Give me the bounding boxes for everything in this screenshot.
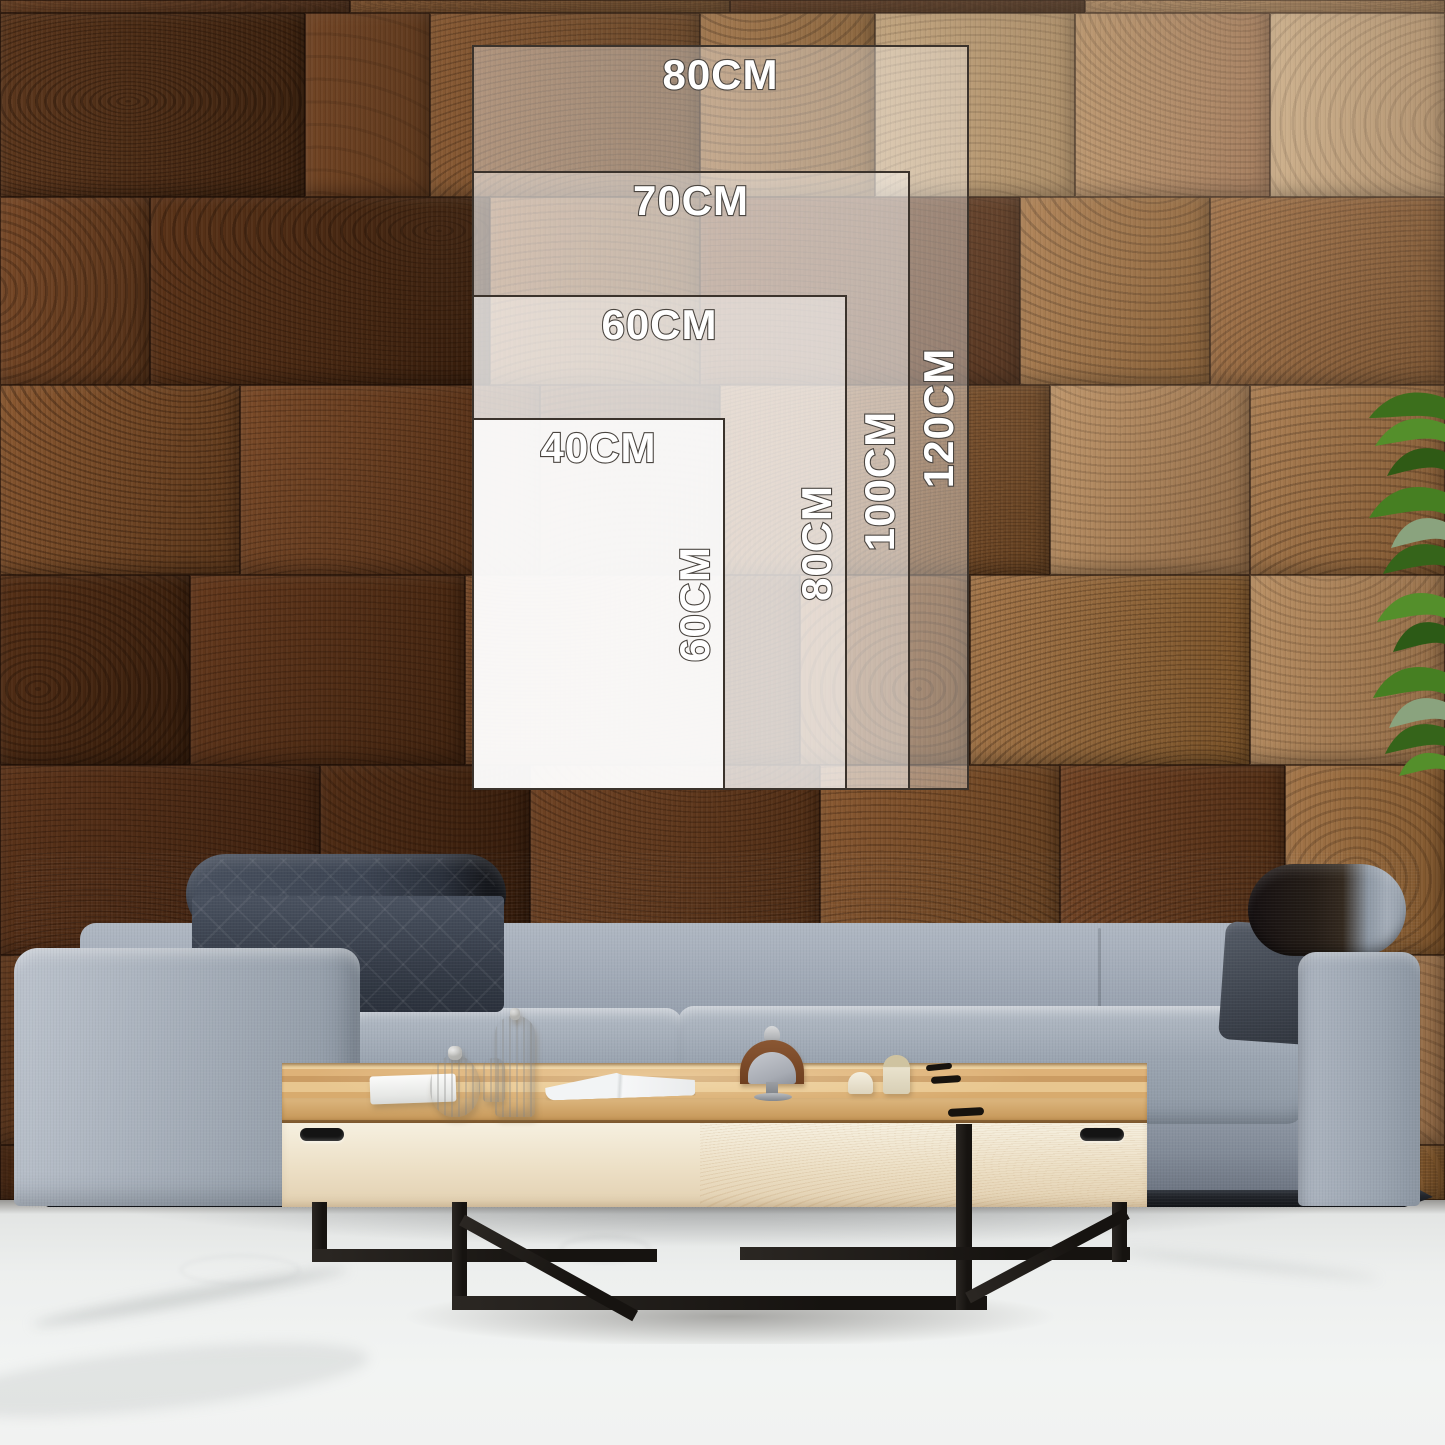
- wall-tile: [0, 0, 350, 13]
- height-label-60cm: 60CM: [674, 546, 716, 662]
- width-label-40cm: 40CM: [474, 427, 723, 469]
- wall-tile: [1270, 13, 1445, 197]
- wall-tile: [0, 575, 190, 765]
- width-label-80cm: 80CM: [474, 54, 967, 96]
- height-label-80cm: 80CM: [796, 484, 838, 600]
- plant-leaves: [1369, 392, 1445, 776]
- table-lower-box: [282, 1123, 1147, 1207]
- table-leg: [956, 1124, 972, 1310]
- height-label-100cm: 100CM: [859, 410, 901, 550]
- wall-tile: [970, 575, 1250, 765]
- wall-tile: [190, 575, 465, 765]
- gourd-vase: [430, 1055, 480, 1117]
- table-leg-runner: [312, 1249, 657, 1262]
- height-label-120cm: 120CM: [918, 347, 960, 487]
- wall-row: [0, 0, 1445, 13]
- sofa-bolster-headrest: [1248, 864, 1406, 956]
- wall-tile: [150, 197, 490, 385]
- table-mirror-foot: [754, 1093, 792, 1101]
- gourd-vase-neck: [448, 1046, 462, 1060]
- wall-tile: [1050, 385, 1250, 575]
- table-handle-left: [300, 1128, 344, 1141]
- candle-small: [848, 1072, 873, 1094]
- plant: [1365, 372, 1445, 777]
- width-label-60cm: 60CM: [474, 304, 845, 346]
- size-rect-40x60: 40CM 60CM: [472, 418, 725, 790]
- wall-tile: [350, 0, 730, 13]
- wall-tile: [1085, 0, 1445, 13]
- wall-tile: [1075, 13, 1270, 197]
- wall-tile: [1020, 197, 1210, 385]
- table-handle-right: [1080, 1128, 1124, 1141]
- sofa-right-armrest: [1298, 952, 1420, 1206]
- tall-vase: [495, 1016, 535, 1117]
- wall-tile: [0, 385, 240, 575]
- wall-tile: [305, 13, 430, 197]
- candle-tall: [883, 1055, 910, 1094]
- tall-vase-nub: [510, 1008, 520, 1020]
- table-leg-runner: [452, 1296, 987, 1310]
- width-label-70cm: 70CM: [474, 180, 908, 222]
- wall-tile: [0, 197, 150, 385]
- wall-tile: [0, 13, 305, 197]
- wall-tile: [730, 0, 1085, 13]
- living-room-size-guide: 80CM 120CM 70CM 100CM 60CM 80CM 40CM 60C…: [0, 0, 1445, 1445]
- wall-tile: [1210, 197, 1445, 385]
